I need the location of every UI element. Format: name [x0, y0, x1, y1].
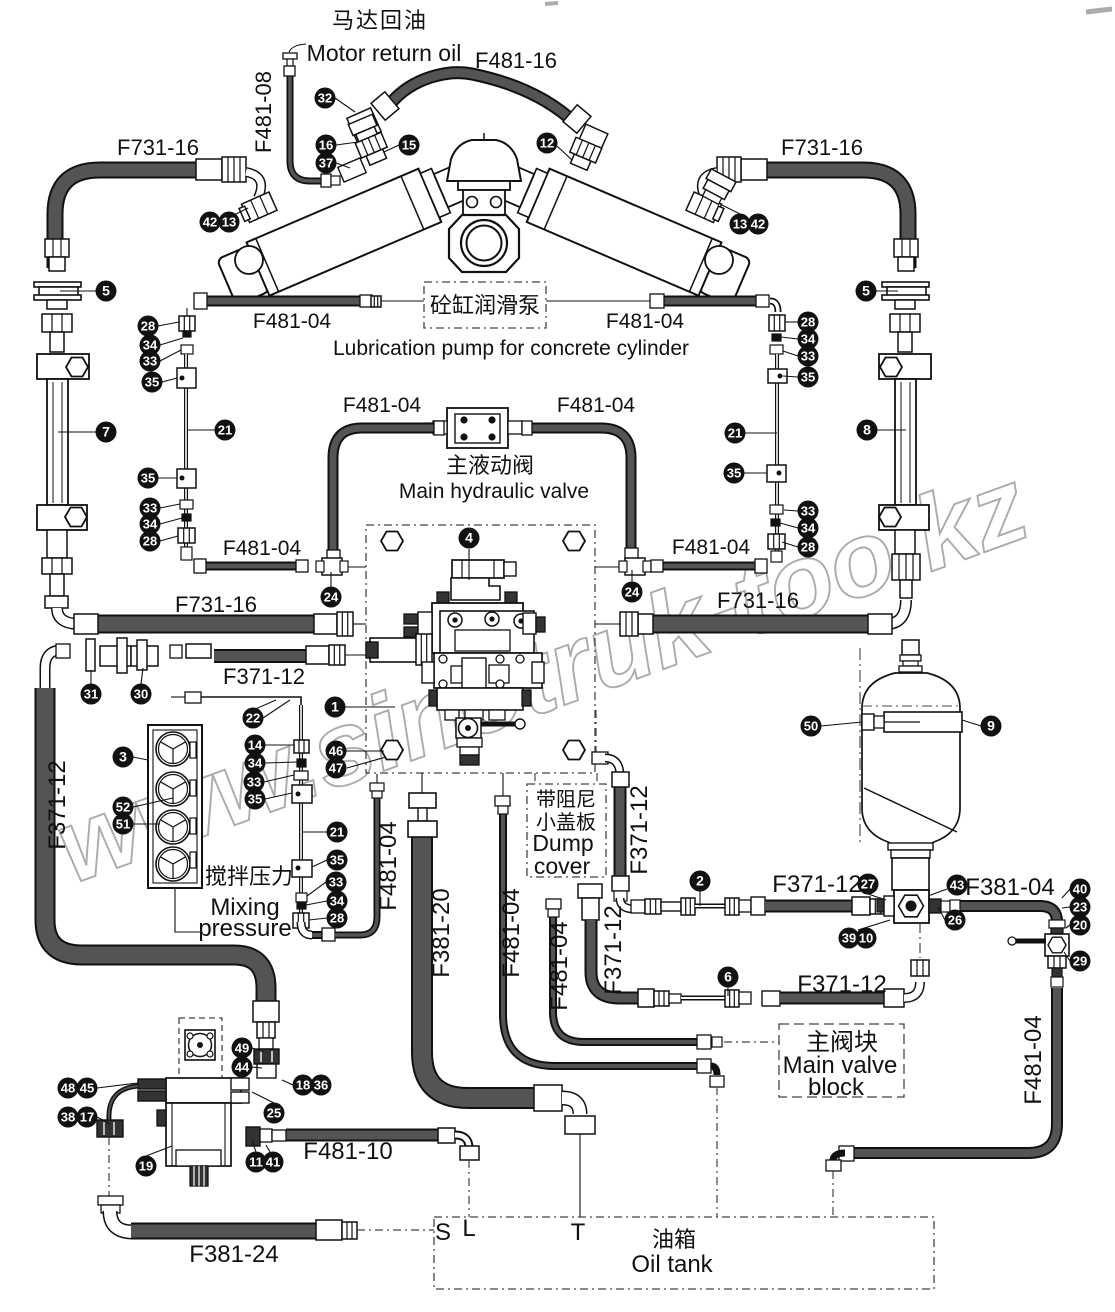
svg-text:F481-16: F481-16	[475, 48, 557, 73]
svg-text:Motor return oil: Motor return oil	[307, 40, 462, 66]
svg-text:19: 19	[139, 1159, 153, 1174]
svg-text:7: 7	[102, 424, 110, 440]
svg-text:block: block	[808, 1074, 865, 1101]
svg-text:15: 15	[402, 138, 416, 153]
svg-text:Main hydraulic valve: Main hydraulic valve	[399, 480, 589, 503]
svg-text:35: 35	[330, 853, 344, 868]
svg-text:F371-12: F371-12	[772, 871, 861, 898]
svg-text:10: 10	[859, 931, 873, 946]
svg-text:42: 42	[203, 215, 217, 230]
svg-text:F481-08: F481-08	[251, 71, 276, 153]
svg-text:6: 6	[724, 969, 732, 985]
svg-text:F731-16: F731-16	[781, 135, 863, 160]
svg-text:34: 34	[143, 338, 158, 353]
svg-text:30: 30	[134, 687, 148, 702]
svg-text:28: 28	[801, 315, 815, 330]
svg-text:43: 43	[950, 878, 964, 893]
svg-text:35: 35	[801, 370, 815, 385]
svg-text:cover: cover	[534, 853, 591, 879]
svg-text:pressure: pressure	[198, 915, 291, 942]
svg-text:F731-16: F731-16	[175, 592, 257, 617]
svg-text:F381-04: F381-04	[965, 874, 1054, 901]
svg-text:33: 33	[801, 349, 815, 364]
svg-text:50: 50	[804, 719, 818, 734]
svg-text:F481-04: F481-04	[1020, 1015, 1047, 1104]
svg-text:33: 33	[247, 775, 261, 790]
svg-text:36: 36	[314, 1078, 328, 1093]
svg-text:F371-12: F371-12	[223, 664, 305, 689]
svg-text:3: 3	[119, 749, 127, 765]
svg-text:S: S	[435, 1219, 451, 1246]
svg-text:23: 23	[1073, 900, 1087, 915]
svg-text:F481-10: F481-10	[303, 1138, 392, 1165]
svg-text:38: 38	[61, 1110, 75, 1125]
svg-text:F371-12: F371-12	[797, 971, 886, 998]
svg-text:砼缸润滑泵: 砼缸润滑泵	[430, 293, 540, 318]
svg-text:2: 2	[696, 873, 704, 889]
svg-text:33: 33	[801, 504, 815, 519]
svg-text:马达回油: 马达回油	[332, 8, 428, 33]
svg-text:37: 37	[319, 156, 333, 171]
svg-text:51: 51	[116, 817, 130, 832]
svg-text:34: 34	[801, 521, 816, 536]
svg-text:27: 27	[861, 877, 875, 892]
svg-text:48: 48	[61, 1081, 75, 1096]
svg-text:11: 11	[249, 1155, 263, 1170]
svg-text:F481-04: F481-04	[498, 888, 525, 977]
svg-text:8: 8	[863, 422, 871, 438]
svg-text:46: 46	[329, 744, 343, 759]
svg-text:20: 20	[1073, 918, 1087, 933]
svg-text:16: 16	[319, 138, 333, 153]
svg-text:35: 35	[727, 466, 741, 481]
svg-text:F481-04: F481-04	[672, 536, 751, 559]
svg-text:28: 28	[141, 319, 155, 334]
svg-text:13: 13	[222, 215, 236, 230]
svg-text:35: 35	[141, 471, 155, 486]
svg-text:28: 28	[330, 911, 344, 926]
svg-text:F731-16: F731-16	[117, 135, 199, 160]
svg-text:34: 34	[330, 894, 345, 909]
svg-text:5: 5	[102, 283, 110, 299]
svg-text:F481-04: F481-04	[253, 310, 332, 333]
svg-text:21: 21	[330, 825, 344, 840]
svg-text:28: 28	[801, 540, 815, 555]
svg-text:F381-20: F381-20	[428, 888, 455, 977]
svg-text:49: 49	[235, 1041, 249, 1056]
svg-text:14: 14	[248, 738, 263, 753]
svg-text:F481-04: F481-04	[343, 394, 422, 417]
svg-text:34: 34	[801, 332, 816, 347]
svg-text:34: 34	[143, 517, 158, 532]
svg-text:39: 39	[842, 931, 856, 946]
svg-text:35: 35	[145, 375, 159, 390]
svg-text:44: 44	[235, 1060, 250, 1075]
svg-text:22: 22	[246, 711, 260, 726]
svg-text:Oil tank: Oil tank	[631, 1251, 713, 1278]
svg-text:47: 47	[329, 761, 343, 776]
svg-text:17: 17	[80, 1110, 94, 1125]
svg-text:28: 28	[143, 534, 157, 549]
svg-text:40: 40	[1073, 882, 1087, 897]
svg-text:F381-24: F381-24	[189, 1241, 278, 1268]
svg-text:18: 18	[296, 1078, 310, 1093]
svg-text:45: 45	[80, 1081, 94, 1096]
svg-text:油箱: 油箱	[652, 1227, 696, 1252]
svg-text:F481-04: F481-04	[375, 821, 402, 910]
svg-text:25: 25	[267, 1106, 281, 1121]
svg-text:12: 12	[540, 136, 554, 151]
svg-text:1: 1	[331, 699, 339, 715]
svg-text:F731-16: F731-16	[717, 588, 799, 613]
svg-text:32: 32	[318, 91, 332, 106]
svg-text:33: 33	[329, 875, 343, 890]
svg-text:F371-12: F371-12	[44, 760, 71, 849]
svg-text:29: 29	[1073, 954, 1087, 969]
svg-text:42: 42	[751, 217, 765, 232]
svg-text:主液动阀: 主液动阀	[446, 453, 534, 478]
svg-text:33: 33	[143, 501, 157, 516]
svg-text:F481-04: F481-04	[606, 310, 685, 333]
svg-text:F481-04: F481-04	[557, 394, 636, 417]
svg-text:21: 21	[728, 426, 742, 441]
svg-text:33: 33	[143, 354, 157, 369]
svg-text:31: 31	[84, 687, 98, 702]
svg-text:5: 5	[862, 283, 870, 299]
svg-text:24: 24	[625, 585, 640, 600]
svg-text:4: 4	[465, 530, 473, 546]
svg-text:24: 24	[324, 590, 339, 605]
svg-text:L: L	[462, 1215, 475, 1242]
svg-text:搅拌压力: 搅拌压力	[205, 864, 293, 889]
svg-text:35: 35	[248, 792, 262, 807]
svg-text:F371-12: F371-12	[626, 785, 653, 874]
svg-text:13: 13	[733, 217, 747, 232]
svg-text:Lubrication pump for concrete: Lubrication pump for concrete cylinder	[333, 337, 689, 360]
svg-text:T: T	[571, 1219, 586, 1246]
svg-text:带阻尼: 带阻尼	[536, 788, 596, 811]
svg-text:F481-04: F481-04	[546, 921, 573, 1010]
svg-text:9: 9	[987, 718, 995, 734]
svg-text:52: 52	[116, 800, 130, 815]
svg-text:41: 41	[266, 1155, 280, 1170]
svg-text:F371-12: F371-12	[600, 905, 627, 994]
svg-text:34: 34	[248, 756, 263, 771]
svg-text:26: 26	[948, 913, 962, 928]
svg-text:F481-04: F481-04	[223, 537, 302, 560]
svg-text:21: 21	[218, 423, 232, 438]
